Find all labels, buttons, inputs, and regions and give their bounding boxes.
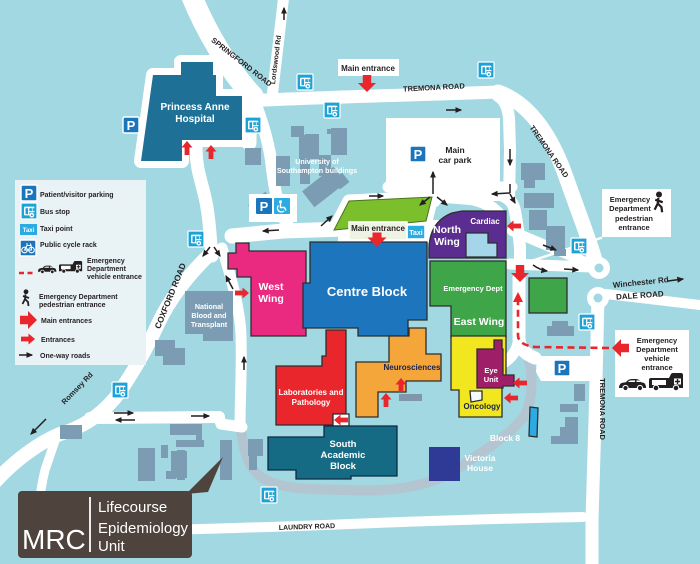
svg-text:Emergency Dept: Emergency Dept: [443, 284, 503, 293]
svg-text:Blood and: Blood and: [191, 311, 226, 320]
svg-text:South: South: [330, 439, 357, 450]
svg-text:West: West: [259, 281, 284, 293]
svg-text:Unit: Unit: [484, 375, 499, 384]
svg-text:car park: car park: [438, 155, 471, 165]
svg-text:Main entrance: Main entrance: [351, 224, 405, 233]
svg-text:Main entrance: Main entrance: [341, 64, 395, 73]
svg-text:Main entrances: Main entrances: [41, 318, 92, 325]
svg-text:Laboratories and: Laboratories and: [279, 388, 344, 397]
svg-text:Epidemiology: Epidemiology: [98, 520, 189, 537]
svg-text:Patient/visitor parking: Patient/visitor parking: [40, 192, 114, 199]
svg-text:Taxi: Taxi: [409, 230, 423, 237]
svg-text:Wing: Wing: [258, 293, 284, 305]
svg-text:vehicle entrance: vehicle entrance: [87, 274, 142, 281]
svg-text:Pathology: Pathology: [292, 398, 331, 407]
svg-text:North: North: [433, 224, 461, 236]
svg-text:P: P: [260, 199, 269, 214]
svg-text:Department: Department: [636, 345, 678, 354]
svg-text:pedestrian: pedestrian: [615, 214, 653, 223]
svg-text:vehicle: vehicle: [644, 354, 669, 363]
svg-text:Neurosciences: Neurosciences: [384, 363, 441, 372]
svg-text:Oncology: Oncology: [464, 402, 501, 411]
svg-text:Taxi point: Taxi point: [40, 226, 73, 233]
svg-text:House: House: [467, 463, 493, 473]
svg-text:Taxi: Taxi: [23, 228, 35, 234]
svg-text:Block 8: Block 8: [490, 433, 521, 443]
svg-text:Centre Block: Centre Block: [327, 284, 408, 299]
svg-text:One-way roads: One-way roads: [40, 353, 90, 360]
svg-text:Emergency: Emergency: [610, 195, 651, 204]
svg-text:Academic: Academic: [321, 450, 366, 461]
svg-text:pedestrian entrance: pedestrian entrance: [39, 302, 106, 309]
svg-text:Block: Block: [330, 461, 357, 472]
svg-text:Department: Department: [87, 266, 127, 273]
svg-text:entrance: entrance: [641, 363, 672, 372]
svg-text:Main: Main: [445, 145, 464, 155]
svg-text:Victoria: Victoria: [464, 453, 495, 463]
svg-text:Hospital: Hospital: [175, 114, 215, 125]
svg-text:Eye: Eye: [484, 366, 497, 375]
svg-text:TREMONA ROAD: TREMONA ROAD: [598, 378, 607, 440]
svg-text:Princess Anne: Princess Anne: [160, 102, 230, 113]
svg-text:Entrances: Entrances: [41, 337, 75, 344]
svg-text:Southampton buildings: Southampton buildings: [277, 166, 357, 175]
svg-text:Emergency Department: Emergency Department: [39, 294, 118, 301]
svg-text:Cardiac: Cardiac: [470, 217, 500, 226]
svg-text:Public cycle rack: Public cycle rack: [40, 242, 97, 249]
svg-text:Transplant: Transplant: [191, 320, 228, 329]
svg-text:Lifecourse: Lifecourse: [98, 499, 167, 516]
svg-text:Department: Department: [609, 204, 651, 213]
svg-text:Bus stop: Bus stop: [40, 209, 70, 216]
svg-text:Emergency: Emergency: [637, 336, 678, 345]
svg-text:Wing: Wing: [434, 236, 460, 248]
svg-text:National: National: [195, 302, 223, 311]
svg-text:Unit: Unit: [98, 538, 126, 555]
svg-text:East Wing: East Wing: [454, 316, 505, 328]
svg-text:MRC: MRC: [22, 524, 86, 555]
svg-text:University of: University of: [295, 157, 339, 166]
svg-text:Emergency: Emergency: [87, 258, 125, 265]
svg-text:entrance: entrance: [618, 223, 649, 232]
